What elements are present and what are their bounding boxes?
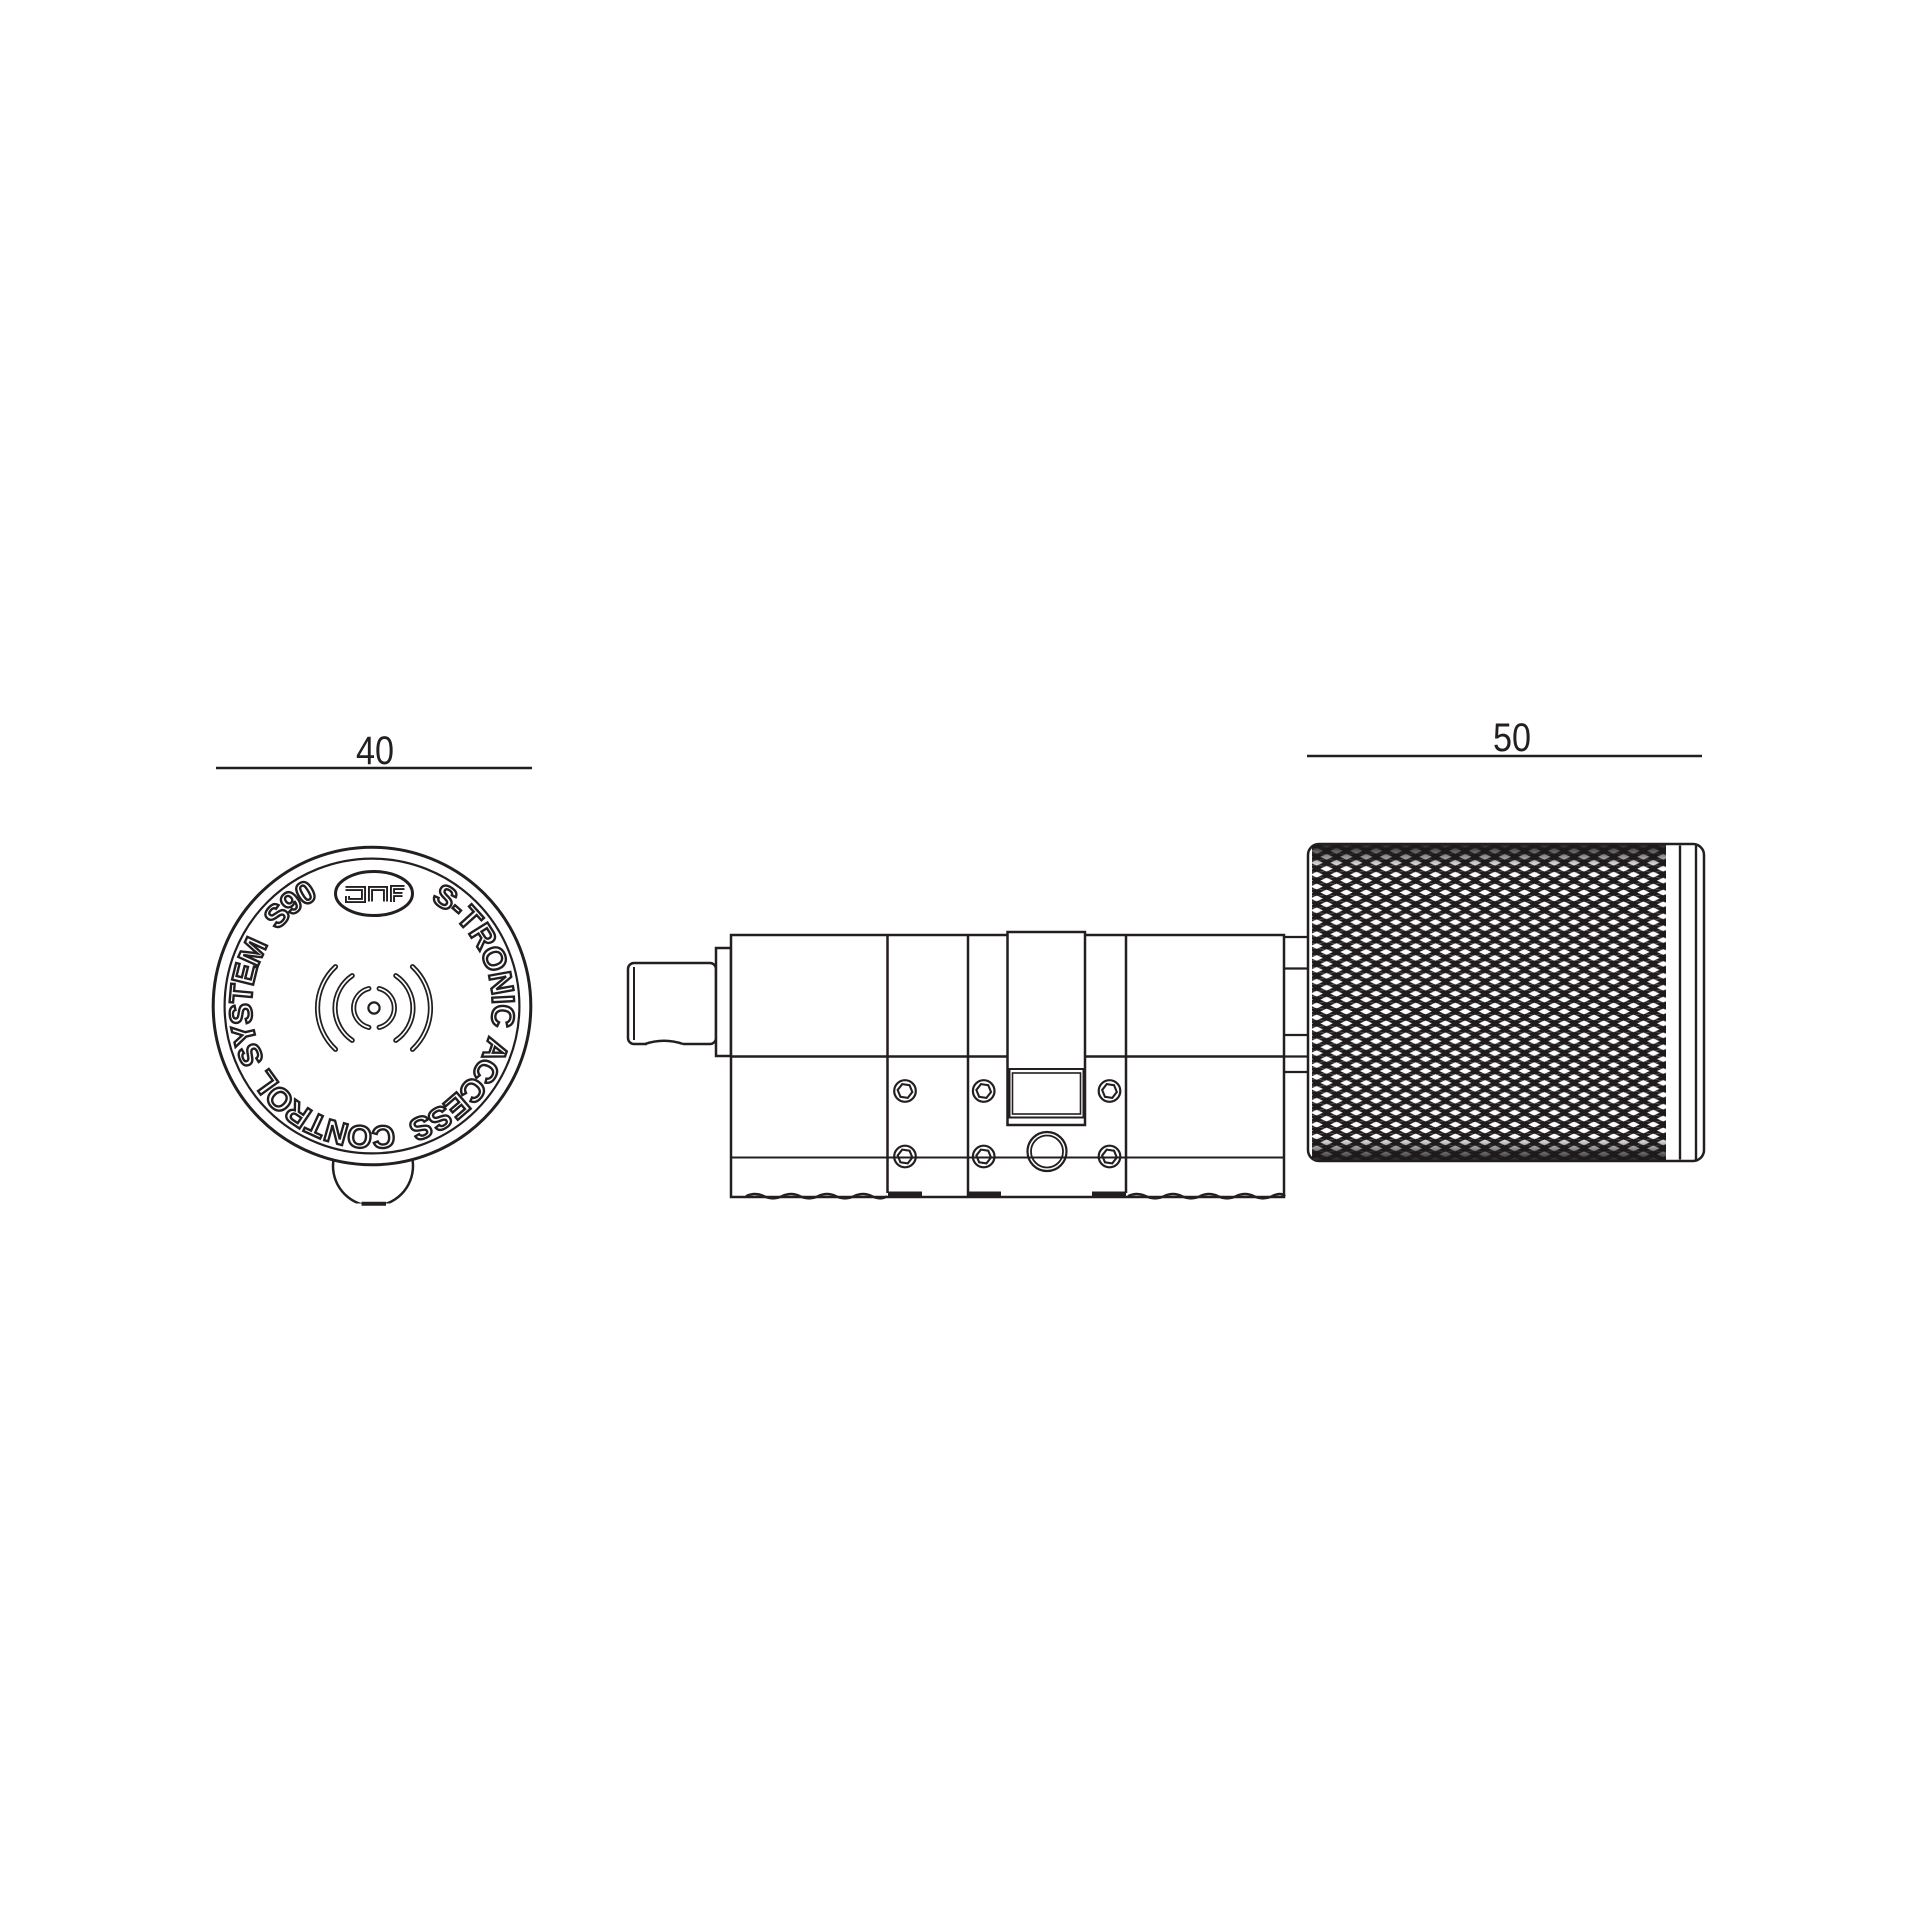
svg-text:50: 50: [1493, 716, 1531, 760]
svg-text:40: 40: [356, 729, 394, 773]
